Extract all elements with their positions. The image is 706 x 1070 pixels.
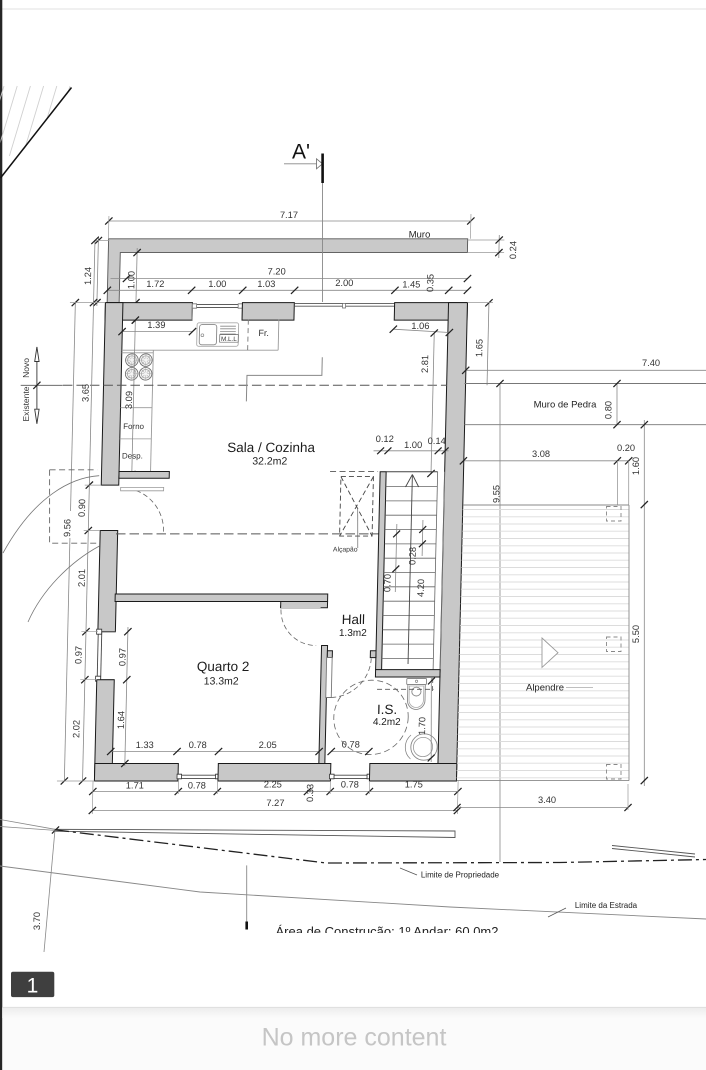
svg-text:0.78: 0.78 <box>189 740 207 750</box>
svg-text:1.33: 1.33 <box>136 740 154 750</box>
svg-text:1.71: 1.71 <box>126 781 144 791</box>
svg-text:No more content: No more content <box>262 1024 447 1052</box>
svg-text:Limite de Propriedade: Limite de Propriedade <box>421 871 500 880</box>
svg-text:0.33: 0.33 <box>305 784 315 802</box>
svg-text:1.24: 1.24 <box>83 267 93 285</box>
svg-text:Fr.: Fr. <box>258 328 269 338</box>
svg-text:1: 1 <box>27 974 39 997</box>
svg-text:32.2m2: 32.2m2 <box>252 456 287 468</box>
svg-text:1.70: 1.70 <box>417 717 427 735</box>
svg-text:1.03: 1.03 <box>257 279 275 289</box>
svg-text:2.25: 2.25 <box>264 780 282 790</box>
svg-text:5.50: 5.50 <box>631 625 641 643</box>
svg-text:1.45: 1.45 <box>402 280 420 290</box>
svg-text:0.24: 0.24 <box>508 241 518 259</box>
svg-text:1.65: 1.65 <box>474 339 484 357</box>
svg-text:2.01: 2.01 <box>77 569 87 587</box>
svg-text:1.3m2: 1.3m2 <box>339 628 367 639</box>
svg-text:1.75: 1.75 <box>405 780 423 790</box>
svg-text:Limite da Estrada: Limite da Estrada <box>575 901 638 910</box>
svg-text:1.60: 1.60 <box>631 457 641 475</box>
svg-text:1.00: 1.00 <box>404 440 422 450</box>
svg-text:1.00: 1.00 <box>126 271 136 289</box>
svg-text:0.90: 0.90 <box>77 499 87 517</box>
svg-text:Muro: Muro <box>409 230 431 241</box>
svg-text:0.14: 0.14 <box>428 436 446 446</box>
svg-text:1.39: 1.39 <box>147 320 165 330</box>
svg-text:2.81: 2.81 <box>420 355 430 373</box>
svg-text:9.56: 9.56 <box>62 519 72 537</box>
svg-text:Alpendre: Alpendre <box>526 683 564 694</box>
svg-text:3.08: 3.08 <box>532 449 550 459</box>
svg-text:3.65: 3.65 <box>80 384 90 402</box>
svg-text:0.70: 0.70 <box>382 574 392 592</box>
svg-text:A': A' <box>292 141 310 164</box>
svg-text:4.2m2: 4.2m2 <box>373 717 401 728</box>
svg-text:2.05: 2.05 <box>259 740 277 750</box>
svg-text:3.09: 3.09 <box>124 391 134 409</box>
svg-text:13.3m2: 13.3m2 <box>204 676 239 688</box>
svg-text:Quarto 2: Quarto 2 <box>197 659 250 674</box>
svg-text:2.02: 2.02 <box>71 720 81 738</box>
svg-text:7.27: 7.27 <box>266 798 284 808</box>
svg-text:1.00: 1.00 <box>208 279 226 289</box>
svg-text:1.64: 1.64 <box>116 711 126 729</box>
svg-text:0.12: 0.12 <box>376 434 394 444</box>
svg-text:Hall: Hall <box>342 612 366 627</box>
svg-text:3.40: 3.40 <box>538 795 556 805</box>
svg-text:0.78: 0.78 <box>342 740 360 750</box>
svg-text:Forno: Forno <box>123 422 145 431</box>
svg-text:7.40: 7.40 <box>642 358 660 368</box>
svg-text:3.70: 3.70 <box>32 912 42 930</box>
svg-text:4.20: 4.20 <box>416 579 426 597</box>
svg-text:0.97: 0.97 <box>73 646 83 664</box>
svg-text:0.97: 0.97 <box>117 648 127 666</box>
svg-text:0.28: 0.28 <box>407 547 417 565</box>
svg-text:Sala / Cozinha: Sala / Cozinha <box>227 440 316 455</box>
svg-text:0.35: 0.35 <box>425 274 435 292</box>
svg-text:Existente: Existente <box>21 386 31 421</box>
svg-text:Novo: Novo <box>21 358 31 378</box>
svg-text:Alçapão: Alçapão <box>333 547 358 554</box>
svg-text:0.78: 0.78 <box>341 780 359 790</box>
svg-text:0.20: 0.20 <box>617 443 635 453</box>
svg-text:7.17: 7.17 <box>280 210 298 220</box>
svg-text:1.72: 1.72 <box>146 279 164 289</box>
svg-text:Muro de Pedra: Muro de Pedra <box>534 400 598 411</box>
svg-text:0.80: 0.80 <box>604 401 614 419</box>
svg-text:9.55: 9.55 <box>492 485 502 503</box>
svg-text:7.20: 7.20 <box>267 267 285 277</box>
svg-text:0.78: 0.78 <box>188 781 206 791</box>
svg-text:1.06: 1.06 <box>411 321 429 331</box>
svg-text:2.00: 2.00 <box>335 278 353 288</box>
svg-text:M.L.L: M.L.L <box>221 336 237 343</box>
svg-text:I.S.: I.S. <box>377 702 398 717</box>
